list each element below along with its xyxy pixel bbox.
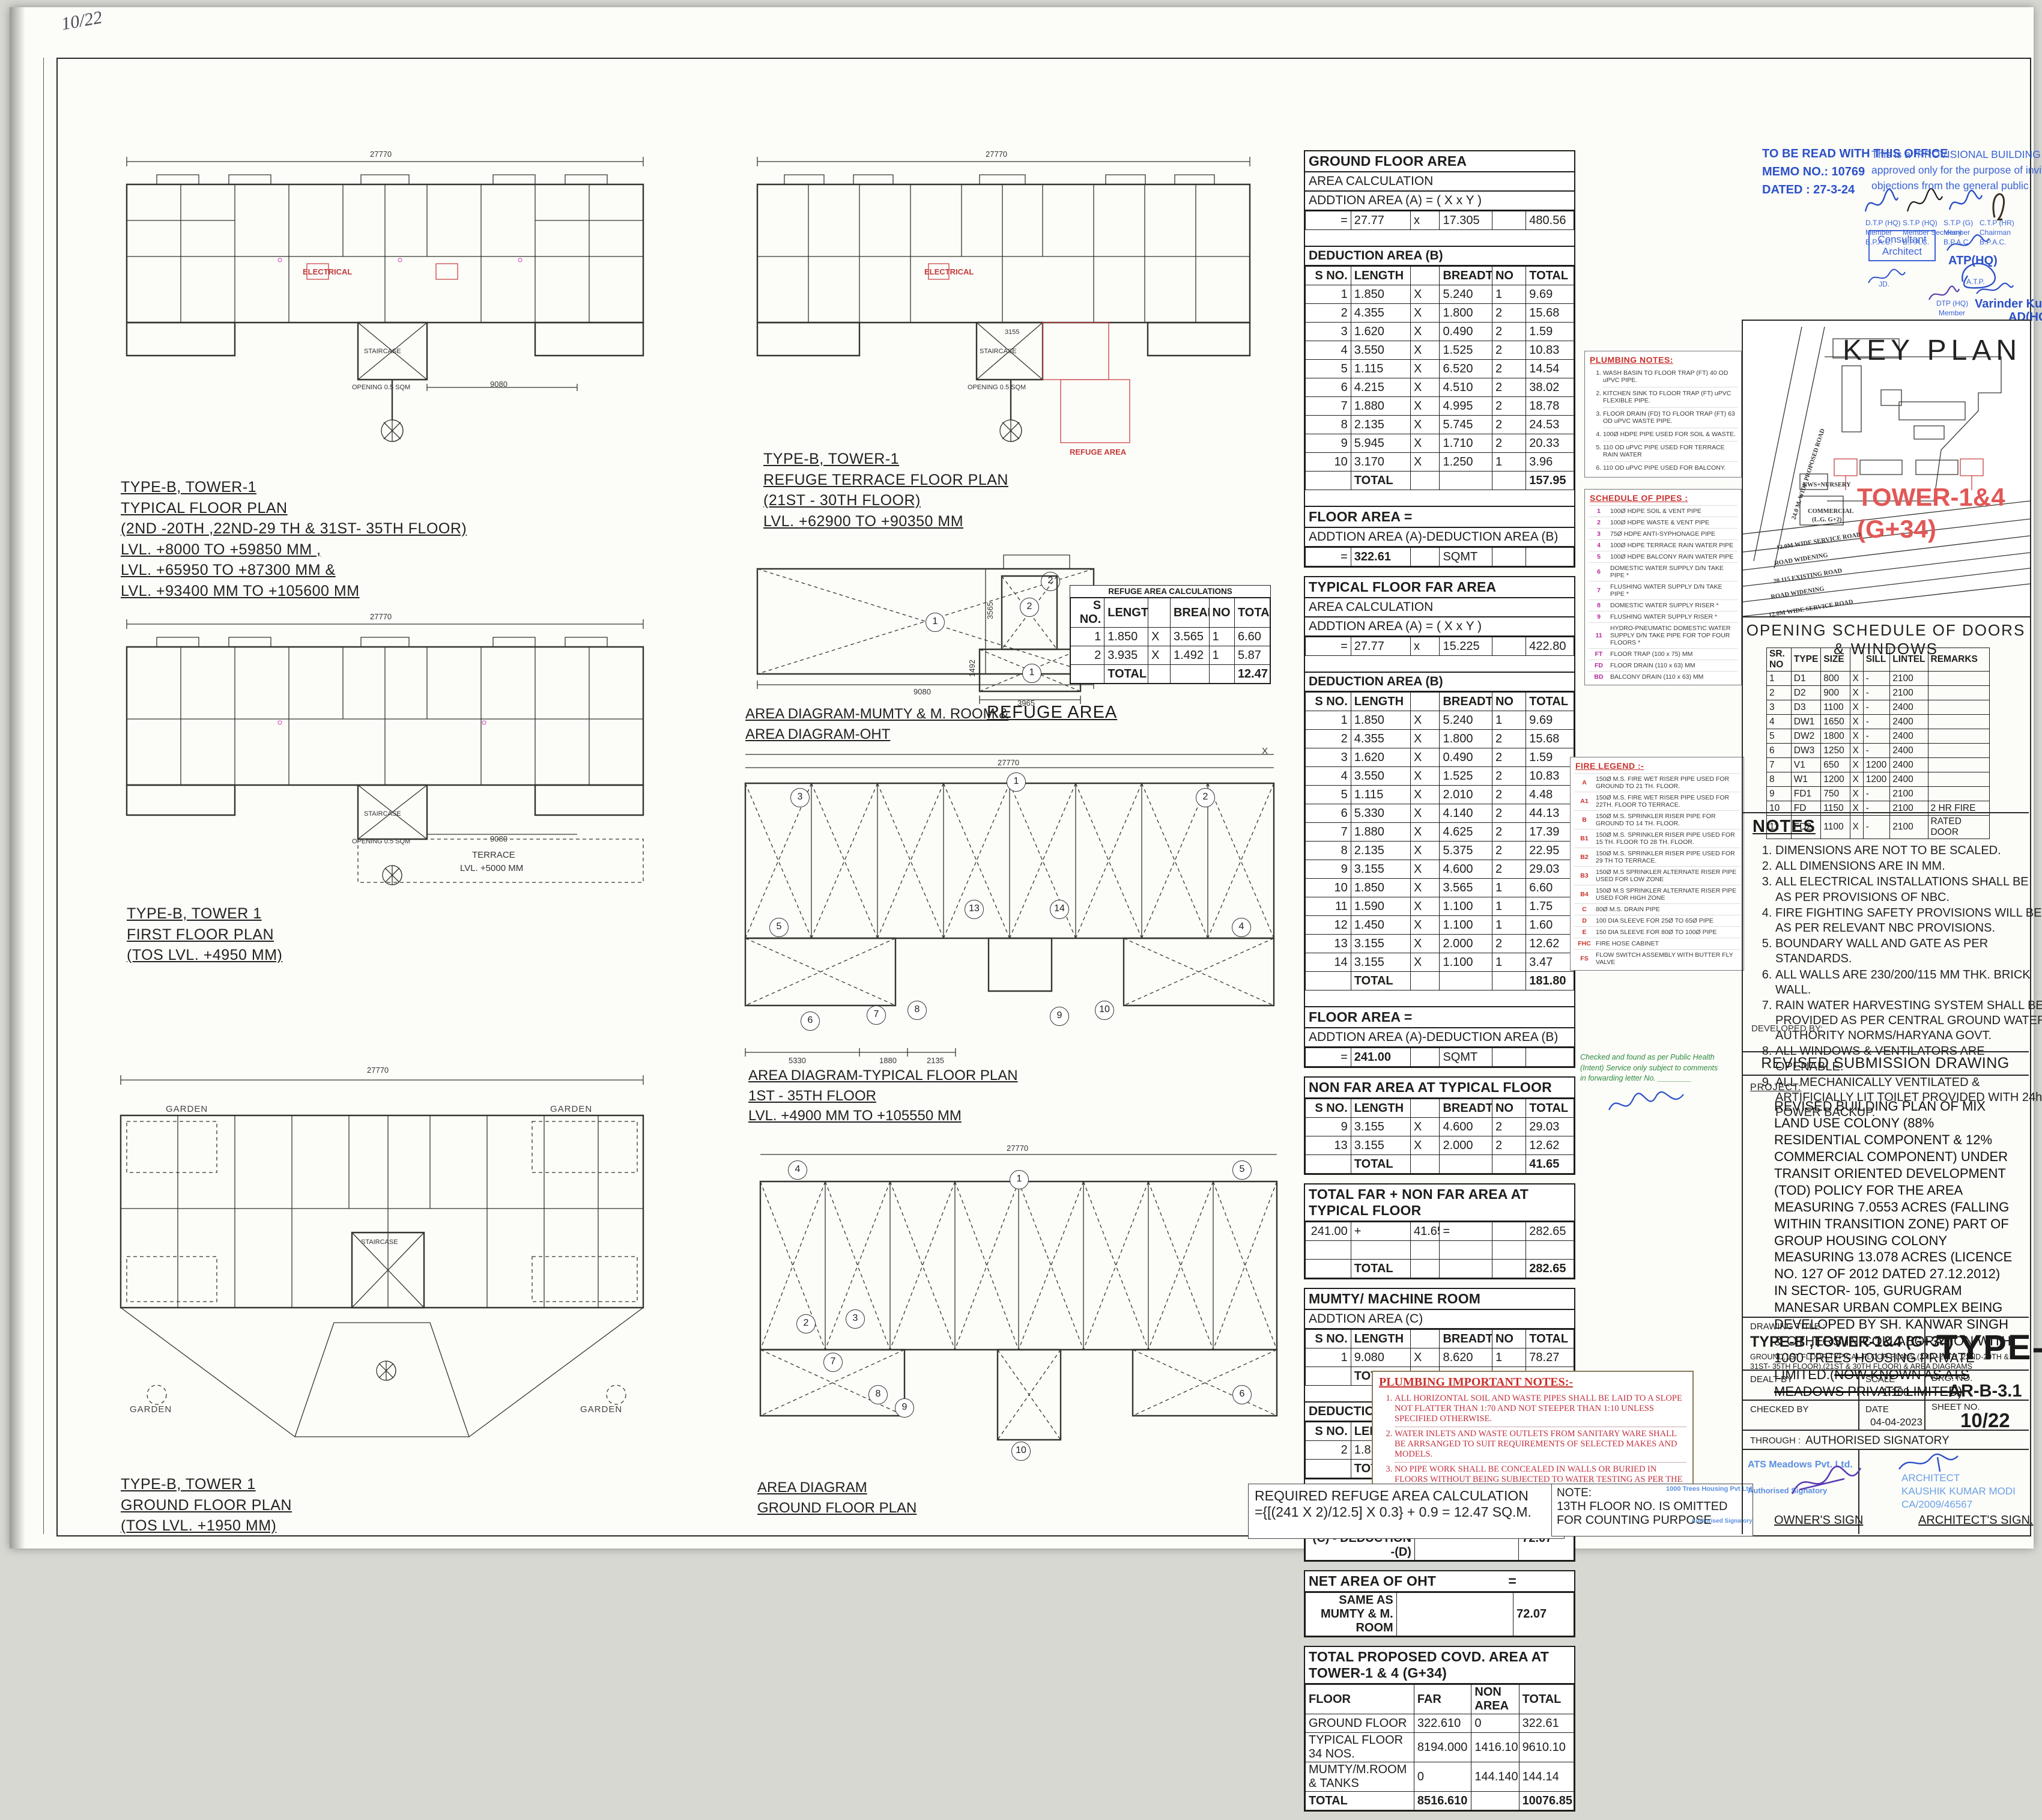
refuge-terrace-plan-svg	[733, 148, 1274, 473]
plan-label-line: TYPE-B, TOWER-1	[763, 449, 1008, 470]
table-cell: 1.75	[1526, 897, 1574, 916]
total-proposed-table: TOTAL PROPOSED COVD. AREA AT TOWER-1 & 4…	[1304, 1646, 1575, 1812]
refuge-terrace-plan-label: TYPE-B, TOWER-1 REFUGE TERRACE FLOOR PLA…	[763, 449, 1008, 532]
table-cell	[1440, 972, 1492, 990]
table-cell: 5.87	[1234, 646, 1270, 665]
opening-schedule-rows: SR. NOTYPESIZESILLLINTELREMARKS1D1800X-2…	[1766, 648, 1990, 839]
floor-area-title: FLOOR AREA =	[1305, 506, 1574, 528]
plan-label-line: AREA DIAGRAM-TYPICAL FLOOR PLAN	[748, 1066, 1018, 1086]
plan-label-line: (TOS LVL. +4950 MM)	[127, 945, 282, 966]
first-floor-plan-drawing: 27770STAIRCASEOPENING 0.5 SQM9080TERRACE…	[100, 611, 670, 893]
table-cell: 2400	[1890, 729, 1928, 744]
table-cell: 4.625	[1440, 823, 1492, 842]
table-cell: 1800	[1821, 729, 1850, 744]
table-cell: 8.620	[1440, 1348, 1492, 1367]
plan-label-line: TYPE-B, TOWER 1	[121, 1474, 292, 1495]
table-cell: 5	[1589, 551, 1609, 563]
list-item: FLOOR DRAIN (FD) TO FLOOR TRAP (FT) 63 O…	[1603, 407, 1738, 425]
green-check-note: Checked and found as per Public Health (…	[1580, 1052, 1742, 1084]
table-cell: X	[1410, 397, 1440, 416]
table-cell: 144.14	[1519, 1762, 1574, 1792]
table-cell	[1440, 1260, 1492, 1278]
ground-floor-area-table: GROUND FLOOR AREA AREA CALCULATION ADDTI…	[1304, 150, 1575, 568]
table-cell	[1306, 972, 1351, 990]
table-cell: x	[1410, 637, 1440, 656]
oht-row: SAME AS MUMTY & M. ROOM72.07	[1305, 1592, 1574, 1636]
table-cell: 150Ø M.S. SPRINKLER RISER PIPE FOR GROUN…	[1595, 811, 1740, 830]
table-cell: 4.995	[1440, 397, 1492, 416]
table-cell: FLOOR DRAIN (110 x 63) MM	[1609, 660, 1738, 672]
table-cell: 2	[1492, 434, 1525, 453]
table-cell: X	[1410, 285, 1440, 304]
table-cell: 2.010	[1440, 786, 1492, 804]
table-cell: X	[1410, 304, 1440, 323]
table-cell	[1071, 665, 1104, 684]
table-cell: A	[1574, 774, 1595, 792]
table-cell: 1.100	[1440, 953, 1492, 972]
table-cell: X	[1410, 453, 1440, 472]
table-cell: -	[1863, 729, 1890, 744]
table-cell: 20.33	[1526, 434, 1574, 453]
list-item: FIRE FIGHTING SAFETY PROVISIONS WILL BE …	[1775, 906, 2042, 936]
table-title: TYPICAL FLOOR FAR AREA	[1305, 577, 1574, 598]
table-cell: 1.100	[1440, 897, 1492, 916]
table-cell: 4.510	[1440, 378, 1492, 397]
table-cell: 2400	[1890, 700, 1928, 715]
table-cell: 282.65	[1526, 1260, 1574, 1278]
table-cell	[1306, 1460, 1351, 1478]
table-cell: TOTAL	[1306, 1792, 1414, 1810]
refuge-area-label: REFUGE AREA	[987, 703, 1117, 723]
table-cell: FLOW SWITCH ASSEMBLY WITH BUTTER FLY VAL…	[1595, 950, 1740, 968]
table-cell: X	[1850, 744, 1863, 758]
table-cell	[1410, 1260, 1440, 1278]
table-cell: X	[1850, 715, 1863, 729]
table-cell	[1306, 1241, 1351, 1260]
typical-area-diagram: X27770312131454678910533018802135	[733, 746, 1286, 1067]
table-cell: 100Ø HDPE TERRACE RAIN WATER PIPE	[1609, 540, 1738, 551]
trees-stamp: 1000 Trees Housing Pvt Ltd	[1666, 1485, 1753, 1493]
table-cell: 750	[1821, 787, 1850, 801]
grid-bubble: 3	[846, 1309, 865, 1329]
table-cell: 78.27	[1526, 1348, 1574, 1367]
staircase-label: STAIRCASE	[361, 1239, 398, 1246]
table-cell: FLUSHING WATER SUPPLY D/N TAKE PIPE *	[1609, 581, 1738, 600]
table-cell: -	[1863, 787, 1890, 801]
table-cell: =	[1306, 1048, 1351, 1067]
table-cell: 2.135	[1351, 416, 1410, 434]
table-cell	[1492, 1241, 1525, 1260]
table-cell: 1.880	[1351, 823, 1410, 842]
table-cell: =	[1440, 1222, 1492, 1241]
table-cell: 1	[1589, 506, 1609, 517]
table-cell: 4	[1589, 540, 1609, 551]
green-note-line: in forwarding letter No. ________	[1580, 1073, 1742, 1084]
table-cell	[1410, 1330, 1440, 1348]
table-cell	[1440, 1241, 1492, 1260]
table-cell: SIZE	[1821, 648, 1850, 672]
table-cell: 10	[1306, 453, 1351, 472]
table-cell: 6	[1306, 378, 1351, 397]
table-cell: =	[1306, 637, 1351, 656]
grid-bubble: 9	[895, 1398, 914, 1418]
plan-label-line: LVL. +65950 TO +87300 MM &	[121, 560, 467, 581]
table-cell: +	[1351, 1222, 1410, 1241]
key-plan-labels: 24.0 M. WIDE PROPOSED ROAD12.0M WIDE SER…	[1743, 321, 2030, 616]
table-cell: MUMTY/M.ROOM & TANKS	[1306, 1762, 1414, 1792]
dim-label: 9080	[490, 834, 507, 843]
binding-edge-line	[43, 58, 44, 1534]
plan-label-line: TYPE-B, TOWER 1	[127, 903, 282, 924]
atp2-stamp: A.T.P.	[1966, 278, 1984, 287]
road-label: ROAD WIDENING	[1774, 552, 1829, 567]
refuge-terrace-floor-plan-drawing: 27770STAIRCASEOPENING 0.5 SQM3155REFUGE …	[733, 148, 1274, 473]
table-cell: S NO.	[1306, 1099, 1351, 1118]
table-cell: X	[1410, 953, 1440, 972]
architect-stamp-line: CA/2009/46567	[1901, 1498, 2016, 1511]
atp-stamp: ATP(HQ)	[1948, 254, 1998, 268]
table-cell: NON AREA	[1471, 1685, 1519, 1714]
table-cell: 1.850	[1351, 879, 1410, 897]
checked-by-label: CHECKED BY	[1750, 1404, 1809, 1415]
signatory-label: S.T.P (HQ)	[1903, 219, 1937, 228]
scale-label: SCALE	[1865, 1374, 1895, 1385]
table-cell: B	[1574, 811, 1595, 830]
dim-label: 1492	[968, 660, 977, 677]
table-cell: 15.68	[1526, 304, 1574, 323]
grid-bubble: 4	[1232, 918, 1251, 937]
table-cell: HYDRO-PNEUMATIC DOMESTIC WATER SUPPLY D/…	[1609, 623, 1738, 649]
addition-row: =27.77x15.225422.80	[1305, 637, 1574, 656]
table-cell: FLOOR	[1306, 1685, 1414, 1714]
commercial-label: (L.G. G+2)	[1812, 517, 1841, 523]
table-cell	[1471, 1792, 1519, 1810]
table-cell: 181.80	[1526, 972, 1574, 990]
table-cell	[1410, 472, 1440, 490]
table-cell: FLOOR TRAP (100 x 75) MM	[1609, 649, 1738, 660]
dim-label: 2135	[927, 1056, 944, 1065]
table-cell: 1416.10	[1471, 1733, 1519, 1762]
table-cell: 480.56	[1526, 211, 1574, 230]
table-cell: X	[1148, 646, 1171, 665]
table-cell	[1492, 637, 1525, 656]
dtp-stamp: Member	[1939, 309, 1965, 318]
table-cell: 5.330	[1351, 804, 1410, 823]
table-cell: 0.490	[1440, 323, 1492, 341]
table-cell: X	[1410, 711, 1440, 730]
dealt-by-label: DEALT BY	[1750, 1374, 1793, 1385]
table-cell: 1.250	[1440, 453, 1492, 472]
table-cell: DOMESTIC WATER SUPPLY D/N TAKE PIPE *	[1609, 563, 1738, 581]
table-cell: TOTAL	[1351, 1260, 1410, 1278]
table-cell	[1440, 472, 1492, 490]
signatory-label: Member	[1944, 229, 1970, 237]
table-cell: NO	[1492, 1330, 1525, 1348]
table-cell: 2.135	[1351, 842, 1410, 860]
table-cell: TOTAL	[1234, 598, 1270, 628]
table-cell: 0	[1414, 1762, 1471, 1792]
table-cell: B4	[1574, 885, 1595, 904]
grid-bubble: 1	[1010, 1170, 1029, 1189]
grid-bubble: 4	[788, 1160, 807, 1180]
total-far-rows: 241.00+41.65=282.65TOTAL282.65	[1305, 1222, 1574, 1278]
table-cell: 2	[1492, 1118, 1525, 1136]
table-cell: 6.520	[1440, 360, 1492, 378]
dim-label: 27770	[986, 150, 1007, 159]
plan-label-line: FIRST FLOOR PLAN	[127, 924, 282, 945]
table-title: TOTAL PROPOSED COVD. AREA AT TOWER-1 & 4…	[1305, 1647, 1574, 1684]
table-cell: 2	[1492, 823, 1525, 842]
table-cell: X	[1410, 916, 1440, 935]
refuge-calc-rows: S NO.LENGTHBREADTHNOTOTAL11.850X3.56516.…	[1070, 598, 1270, 684]
table-cell	[1209, 665, 1234, 684]
table-cell: 1	[1209, 628, 1234, 646]
table-cell: 100Ø HDPE SOIL & VENT PIPE	[1609, 506, 1738, 517]
table-cell: 17.39	[1526, 823, 1574, 842]
table-cell: 241.00	[1306, 1222, 1351, 1241]
staircase-label: STAIRCASE	[364, 810, 401, 817]
dim-label: 9080	[490, 380, 507, 389]
table-cell	[1410, 1099, 1440, 1118]
table-cell: B1	[1574, 830, 1595, 848]
notes-title: NOTES	[1753, 817, 1816, 837]
table-title: MUMTY/ MACHINE ROOM	[1305, 1289, 1574, 1310]
deduction-title: DEDUCTION AREA (B)	[1305, 246, 1574, 266]
table-subtitle: AREA CALCULATION	[1305, 172, 1574, 192]
road-label: 12.0M WIDE SERVICE ROAD	[1768, 599, 1853, 617]
table-cell: E	[1574, 927, 1595, 938]
table-cell: 1	[1492, 711, 1525, 730]
table-cell: 41.65	[1526, 1155, 1574, 1174]
table-cell: 2400	[1890, 715, 1928, 729]
table-cell: 15.68	[1526, 730, 1574, 748]
fire-legend-title: FIRE LEGEND :-	[1575, 761, 1740, 771]
table-cell: FAR	[1414, 1685, 1471, 1714]
table-cell: 1650	[1821, 715, 1850, 729]
table-cell: 6	[1767, 744, 1792, 758]
table-cell: 17.305	[1440, 211, 1492, 230]
total-far-table: TOTAL FAR + NON FAR AREA AT TYPICAL FLOO…	[1304, 1183, 1575, 1279]
opening-label: OPENING 0.5 SQM	[968, 384, 1026, 391]
list-item: 110 OD uPVC PIPE USED FOR BALCONY.	[1603, 461, 1738, 472]
typical-floor-plan-svg	[100, 148, 670, 473]
table-cell: X	[1410, 786, 1440, 804]
table-cell: x	[1410, 211, 1440, 230]
table-cell	[1440, 1155, 1492, 1174]
authorised-signatory-label: AUTHORISED SIGNATORY	[1805, 1434, 1950, 1448]
table-cell: X	[1850, 758, 1863, 772]
list-item: ALL ELECTRICAL INSTALLATIONS SHALL BE AS…	[1775, 875, 2042, 905]
table-cell	[1148, 665, 1171, 684]
table-cell: 241.00	[1351, 1048, 1410, 1067]
table-cell: 322.61	[1519, 1714, 1574, 1733]
table-cell: 75Ø HDPE ANTI-SYPHONAGE PIPE	[1609, 529, 1738, 540]
signatory-label: B.P.A.C.	[1865, 238, 1892, 247]
note-13th-floor-box: NOTE: 13TH FLOOR NO. IS OMITTED FOR COUN…	[1551, 1484, 1753, 1536]
table-cell: X	[1410, 879, 1440, 897]
handwritten-page-number: 10/22	[60, 7, 104, 34]
table-cell: 7	[1767, 758, 1792, 772]
table-cell: 13	[1306, 1136, 1351, 1155]
table-cell: TOTAL	[1526, 693, 1574, 711]
table-cell: 100 DIA SLEEVE FOR 25Ø TO 65Ø PIPE	[1595, 915, 1740, 927]
date-label: DATE	[1865, 1404, 1889, 1415]
table-cell: 1.800	[1440, 304, 1492, 323]
table-cell: C	[1574, 904, 1595, 915]
equals-sign: =	[1508, 1573, 1516, 1589]
table-cell	[1410, 1048, 1440, 1067]
table-cell: 1200	[1863, 758, 1890, 772]
table-cell: 10	[1306, 879, 1351, 897]
jd-stamp: JD.	[1879, 281, 1889, 289]
table-cell: 1.60	[1526, 916, 1574, 935]
table-cell: FHC	[1574, 938, 1595, 950]
table-cell: 3.550	[1351, 767, 1410, 786]
grid-bubble: 2	[796, 1314, 816, 1333]
grid-bubble: 8	[868, 1385, 888, 1404]
table-cell: =	[1306, 211, 1351, 230]
table-cell: FLUSHING WATER SUPPLY RISER *	[1609, 611, 1738, 623]
table-cell: 3.170	[1351, 453, 1410, 472]
signatory-label: B.P.A.C.	[1903, 238, 1929, 247]
table-cell: BREADTH	[1440, 693, 1492, 711]
floor-area-row: =322.61SQMT	[1305, 547, 1574, 566]
table-cell: 9	[1306, 1118, 1351, 1136]
plan-label-line: (2ND -20TH ,22ND-29 TH & 31ST- 35TH FLOO…	[121, 518, 467, 539]
table-cell: 2	[1492, 804, 1525, 823]
garden-label: GARDEN	[550, 1104, 592, 1114]
table-cell: -	[1863, 744, 1890, 758]
table-cell: V1	[1791, 758, 1820, 772]
table-cell: FD	[1589, 660, 1609, 672]
non-far-area-table: NON FAR AREA AT TYPICAL FLOOR S NO.LENGT…	[1304, 1076, 1575, 1175]
table-cell: 0.490	[1440, 748, 1492, 767]
table-cell	[1492, 472, 1525, 490]
grid-bubble: 6	[1232, 1385, 1252, 1404]
table-cell	[1306, 472, 1351, 490]
table-cell: 650	[1821, 758, 1850, 772]
signatory-label: B.P.A.C.	[1980, 238, 2006, 247]
table-cell: X	[1410, 360, 1440, 378]
table-cell: 3.565	[1170, 628, 1209, 646]
through-label: THROUGH :	[1750, 1436, 1801, 1446]
table-cell: 1.59	[1526, 748, 1574, 767]
table-cell: 3.935	[1104, 646, 1148, 665]
table-cell: 5	[1306, 786, 1351, 804]
proposed-rows: FLOORFARNON AREATOTALGROUND FLOOR322.610…	[1305, 1684, 1574, 1810]
table-cell: TYPICAL FLOOR 34 NOS.	[1306, 1733, 1414, 1762]
list-item: ALL WALLS ARE 230/200/115 MM THK. BRICK …	[1775, 968, 2042, 998]
table-cell: 1	[1767, 672, 1792, 686]
drawing-title-label: DRAWING TITLE :	[1750, 1321, 1825, 1332]
list-item: RAIN WATER HARVESTING SYSTEM SHALL BE PR…	[1775, 998, 2042, 1044]
oht-title: NET AREA OF OHT	[1309, 1573, 1436, 1589]
grid-bubble: 2	[1196, 788, 1215, 807]
table-cell	[1492, 1260, 1525, 1278]
dim-label: 5330	[789, 1056, 806, 1065]
table-cell: 1100	[1821, 816, 1850, 839]
table-cell: 18.78	[1526, 397, 1574, 416]
table-cell: X	[1410, 1348, 1440, 1367]
table-cell: NO	[1209, 598, 1234, 628]
table-cell: 100Ø HDPE BALCONY RAIN WATER PIPE	[1609, 551, 1738, 563]
table-cell: D1	[1791, 672, 1820, 686]
staircase-label: STAIRCASE	[980, 348, 1017, 355]
memo-stamp: DATED : 27-3-24	[1762, 183, 1855, 197]
pipes-table: 1100Ø HDPE SOIL & VENT PIPE2100Ø HDPE WA…	[1589, 505, 1738, 682]
typical-floor-far-table: TYPICAL FLOOR FAR AREA AREA CALCULATION …	[1304, 576, 1575, 1068]
submission-title: REVISED SUBMISSION DRAWING	[1742, 1051, 2029, 1076]
sheet-no-value: 10/22	[1960, 1409, 2010, 1432]
table-cell: 11	[1306, 897, 1351, 916]
required-refuge-box: REQUIRED REFUGE AREA CALCULATION ={[(241…	[1248, 1484, 1565, 1539]
table-cell: NO	[1492, 267, 1525, 285]
table-cell	[1492, 1048, 1525, 1067]
axis-label: X	[1262, 746, 1268, 756]
table-cell: 10.83	[1526, 341, 1574, 360]
table-cell: 2100	[1890, 686, 1928, 700]
table-cell: 4.355	[1351, 304, 1410, 323]
table-cell: SILL	[1863, 648, 1890, 672]
dim-label: 27770	[370, 150, 392, 159]
table-cell: 1	[1492, 953, 1525, 972]
dim-label: 3155	[1005, 329, 1019, 336]
table-cell: DW3	[1791, 744, 1820, 758]
table-cell	[1928, 672, 1989, 686]
table-cell: 2	[1071, 646, 1104, 665]
typical-area-diagram-label: AREA DIAGRAM-TYPICAL FLOOR PLAN 1ST - 35…	[748, 1066, 1018, 1126]
plan-label-line: LVL. +4900 MM TO +105550 MM	[748, 1106, 1018, 1126]
first-floor-plan-label: TYPE-B, TOWER 1 FIRST FLOOR PLAN (TOS LV…	[127, 903, 282, 966]
table-cell: 1250	[1821, 744, 1850, 758]
table-cell: FIRE HOSE CABINET	[1595, 938, 1740, 950]
key-plan-box: KEY PLAN TOWER-1&4 (G+34) 24.0 M. WIDE P…	[1742, 320, 2031, 617]
table-cell	[1928, 744, 1989, 758]
table-cell	[1492, 1222, 1525, 1241]
table-cell: 2	[1767, 686, 1792, 700]
plan-label-line: 1ST - 35TH FLOOR	[748, 1086, 1018, 1106]
table-cell: 1200	[1821, 772, 1850, 787]
date-value: 04-04-2023	[1870, 1416, 1922, 1428]
table-cell: DOMESTIC WATER SUPPLY RISER *	[1609, 600, 1738, 611]
table-cell: 2.000	[1440, 1136, 1492, 1155]
table-cell: 800	[1821, 672, 1850, 686]
table-cell: 5.240	[1440, 285, 1492, 304]
list-item: 110 OD uPVC PIPE USED FOR TERRACE RAIN W…	[1603, 441, 1738, 458]
plumbing-important-list: ALL HORIZONTAL SOIL AND WASTE PIPES SHAL…	[1379, 1392, 1686, 1495]
table-cell: 150Ø M.S SPRINKLER ALTERNATE RISER PIPE …	[1595, 867, 1740, 885]
grid-bubble: 1	[926, 613, 945, 632]
table-cell	[1148, 598, 1171, 628]
table-cell: LENGTH	[1351, 267, 1410, 285]
table-cell: REMARKS	[1928, 648, 1989, 672]
road-label: 20.115 EXISTING ROAD	[1773, 568, 1843, 585]
table-cell: 9610.10	[1519, 1733, 1574, 1762]
signatory-label: D.T.P (HQ)	[1865, 219, 1900, 228]
table-cell: 150Ø M.S SPRINKLER ALTERNATE RISER PIPE …	[1595, 885, 1740, 904]
ground-floor-plan-label: TYPE-B, TOWER 1 GROUND FLOOR PLAN (TOS L…	[121, 1474, 292, 1536]
table-cell: 1.620	[1351, 323, 1410, 341]
table-cell: 9	[1589, 611, 1609, 623]
table-cell	[1170, 665, 1209, 684]
table-cell: GROUND FLOOR	[1306, 1714, 1414, 1733]
table-cell: 5.945	[1351, 434, 1410, 453]
required-refuge-line: REQUIRED REFUGE AREA CALCULATION	[1255, 1488, 1558, 1504]
electrical-label: ELECTRICAL	[303, 267, 352, 276]
green-note-line: Checked and found as per Public Health	[1580, 1052, 1742, 1063]
table-cell: DW1	[1791, 715, 1820, 729]
table-cell: 14.54	[1526, 360, 1574, 378]
